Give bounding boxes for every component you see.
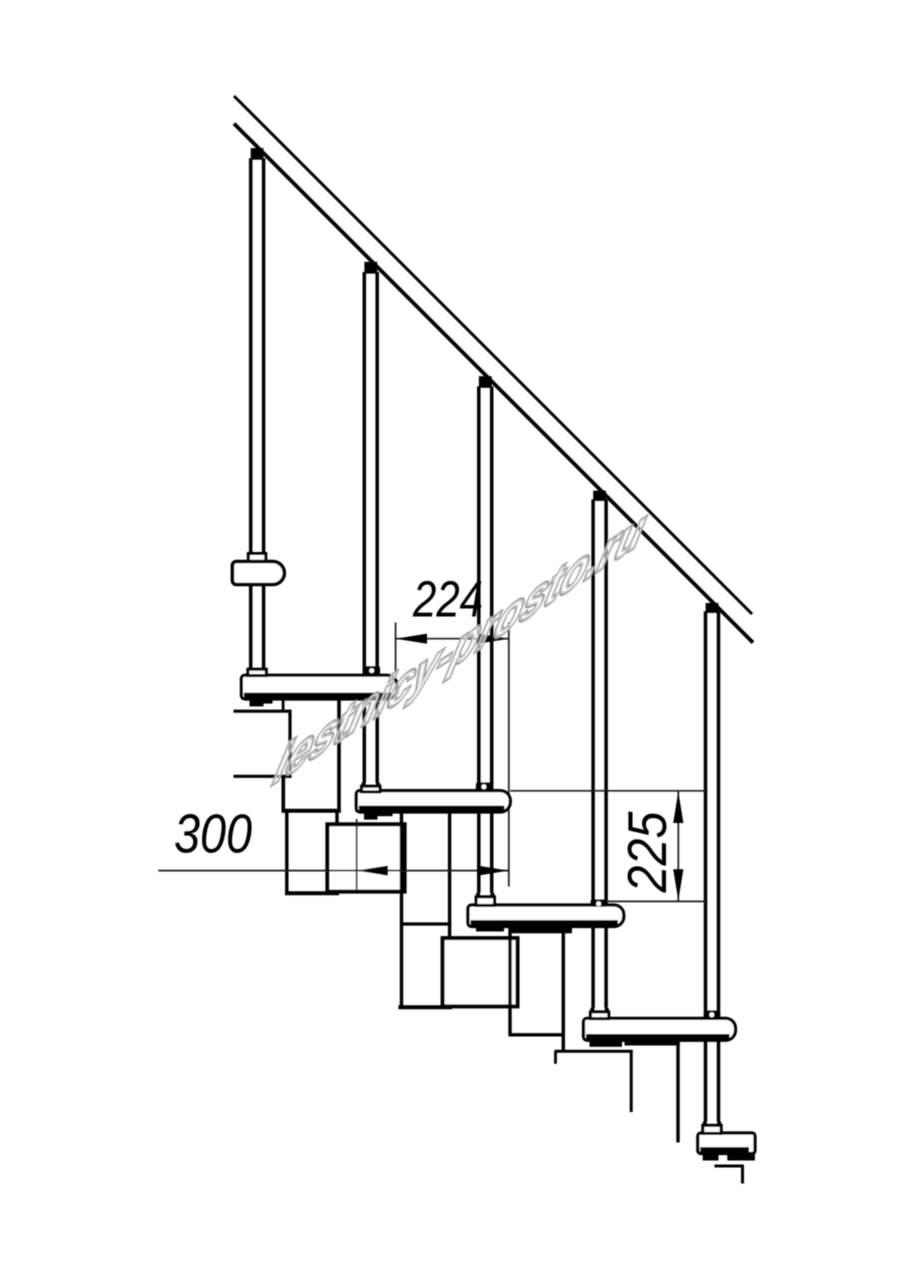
svg-text:300: 300: [174, 803, 252, 865]
svg-text:225: 225: [616, 811, 678, 893]
